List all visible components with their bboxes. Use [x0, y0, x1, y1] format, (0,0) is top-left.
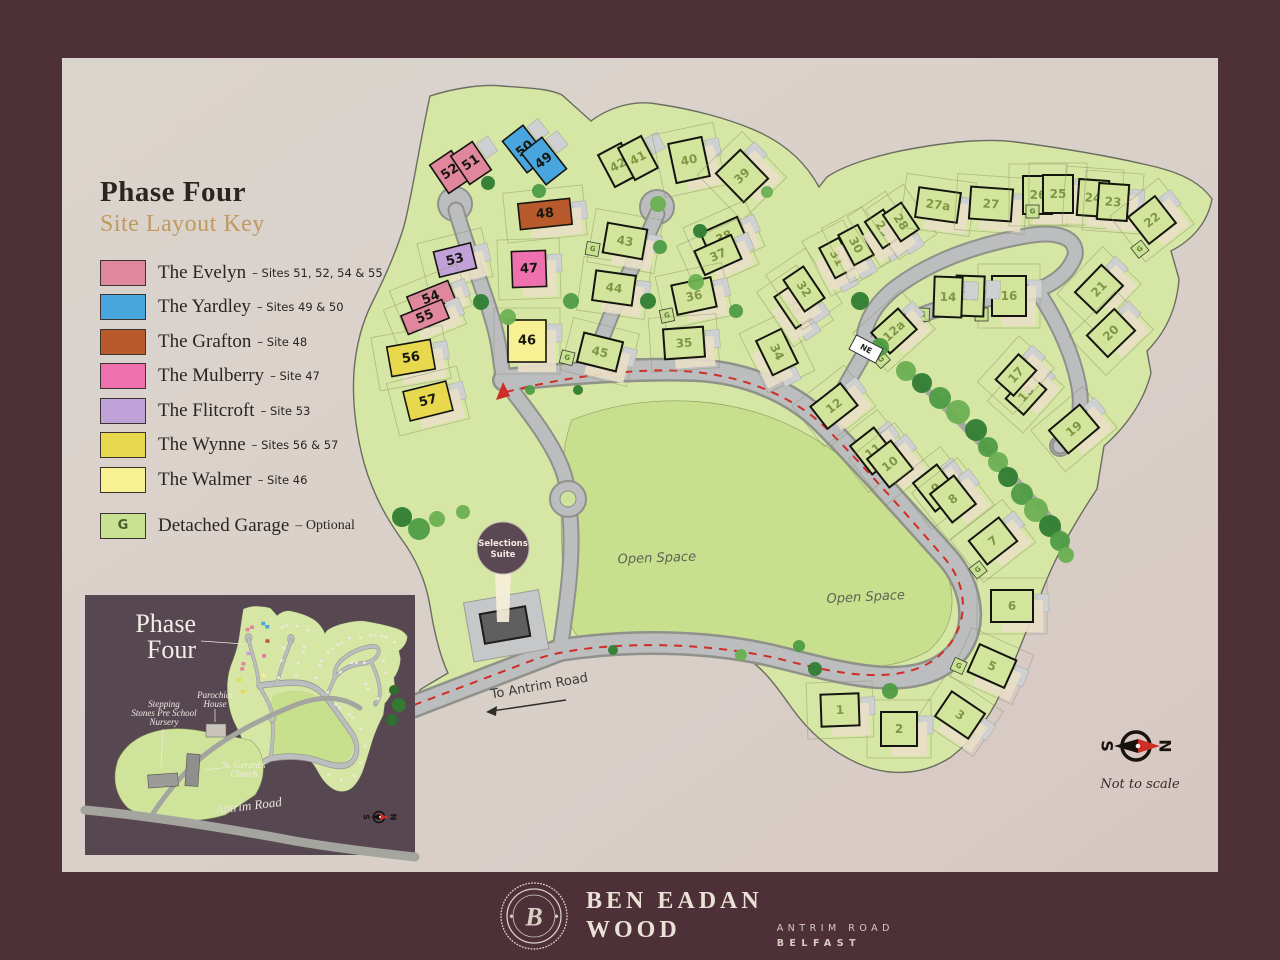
- legend-sites: – Site 47: [270, 369, 320, 383]
- legend-item-6: The Walmer– Site 46: [100, 466, 390, 493]
- legend-swatch: [100, 329, 146, 355]
- legend-garage-name: Detached Garage: [158, 515, 289, 537]
- brand-line1: BEN EADAN: [586, 887, 763, 916]
- legend-name: The Grafton: [158, 331, 251, 353]
- legend-name: The Evelyn: [158, 262, 246, 284]
- svg-text:N: N: [1156, 739, 1175, 752]
- inset-title-line1: Phase: [135, 609, 196, 638]
- brand-footer: B BEN EADAN WOOD ANTRIM ROAD BELFAST: [498, 874, 894, 958]
- not-to-scale-note: Not to scale: [1099, 777, 1180, 792]
- inset-map: Phase Four Stepping Stones Pre School Nu…: [85, 595, 415, 857]
- svg-text:G: G: [1030, 208, 1036, 216]
- legend-sites: – Site 53: [261, 404, 311, 418]
- legend-item-2: The Grafton– Site 48: [100, 328, 390, 355]
- legend-sites: – Sites 51, 52, 54 & 55: [252, 266, 383, 280]
- legend-sites: – Sites 49 & 50: [257, 300, 344, 314]
- svg-text:House: House: [203, 699, 227, 709]
- svg-text:48: 48: [535, 206, 555, 223]
- site-layout-key: Phase Four Site Layout Key The Evelyn– S…: [100, 176, 390, 539]
- open-space-label-west: Open Space: [617, 550, 696, 568]
- svg-text:Church: Church: [231, 769, 258, 779]
- legend-swatch: [100, 432, 146, 458]
- legend-subtitle: Site Layout Key: [100, 211, 390, 238]
- legend-sites: – Site 46: [258, 473, 308, 487]
- svg-text:1: 1: [836, 703, 845, 717]
- svg-text:43: 43: [616, 233, 635, 250]
- legend-name: The Mulberry: [158, 365, 264, 387]
- svg-text:S: S: [362, 814, 371, 820]
- brand-address: ANTRIM ROAD BELFAST: [777, 874, 894, 958]
- legend-item-garage: G Detached Garage – Optional: [100, 512, 390, 539]
- legend-swatch: [100, 294, 146, 320]
- brand-city: BELFAST: [777, 938, 894, 949]
- selections-suite-marker: Selections Suite: [477, 522, 529, 574]
- brand-wordmark: BEN EADAN WOOD: [586, 887, 763, 945]
- legend-sites: – Site 48: [257, 335, 307, 349]
- legend-name: The Flitcroft: [158, 400, 255, 422]
- svg-text:6: 6: [1008, 599, 1016, 613]
- svg-text:27: 27: [982, 196, 1000, 211]
- svg-text:23: 23: [1104, 194, 1122, 209]
- legend-title: Phase Four: [100, 176, 390, 209]
- svg-text:46: 46: [518, 334, 536, 349]
- legend-item-0: The Evelyn– Sites 51, 52, 54 & 55: [100, 259, 390, 286]
- inset-title-line2: Four: [147, 635, 196, 664]
- brochure-page: 525150494853475455565746G4544G4342414039…: [0, 0, 1280, 960]
- brand-monogram: B: [524, 903, 542, 932]
- svg-text:14: 14: [939, 290, 956, 305]
- legend-item-5: The Wynne– Sites 56 & 57: [100, 432, 390, 459]
- church-building: [185, 754, 200, 787]
- legend-swatch: [100, 260, 146, 286]
- legend-item-4: The Flitcroft– Site 53: [100, 397, 390, 424]
- svg-text:56: 56: [401, 349, 421, 367]
- svg-text:Suite: Suite: [491, 550, 516, 560]
- brand-badge: B: [498, 880, 570, 952]
- legend-garage-suffix: – Optional: [295, 518, 355, 534]
- legend-name: The Wynne: [158, 434, 246, 456]
- suite-pointer-beam: [495, 572, 511, 622]
- svg-text:16: 16: [1001, 289, 1018, 303]
- svg-text:Selections: Selections: [478, 539, 528, 549]
- legend-items: The Evelyn– Sites 51, 52, 54 & 55The Yar…: [100, 259, 390, 493]
- garage-swatch: G: [100, 513, 146, 539]
- legend-item-3: The Mulberry– Site 47: [100, 363, 390, 390]
- parochial-house-building: [206, 724, 226, 737]
- svg-text:44: 44: [605, 280, 623, 296]
- legend-item-1: The Yardley– Sites 49 & 50: [100, 294, 390, 321]
- svg-text:N: N: [389, 814, 398, 821]
- svg-text:Nursery: Nursery: [149, 717, 179, 727]
- legend-sites: – Sites 56 & 57: [252, 438, 339, 452]
- legend-swatch: [100, 467, 146, 493]
- svg-text:47: 47: [520, 261, 539, 277]
- legend-swatch: [100, 398, 146, 424]
- brand-road: ANTRIM ROAD: [777, 923, 894, 934]
- svg-text:S: S: [1098, 740, 1117, 752]
- legend-swatch: [100, 363, 146, 389]
- svg-text:2: 2: [895, 722, 903, 736]
- svg-text:35: 35: [675, 335, 693, 350]
- brand-line2: WOOD: [586, 916, 763, 945]
- nursery-building: [148, 773, 179, 788]
- legend-name: The Yardley: [158, 296, 251, 318]
- legend-name: The Walmer: [158, 469, 252, 491]
